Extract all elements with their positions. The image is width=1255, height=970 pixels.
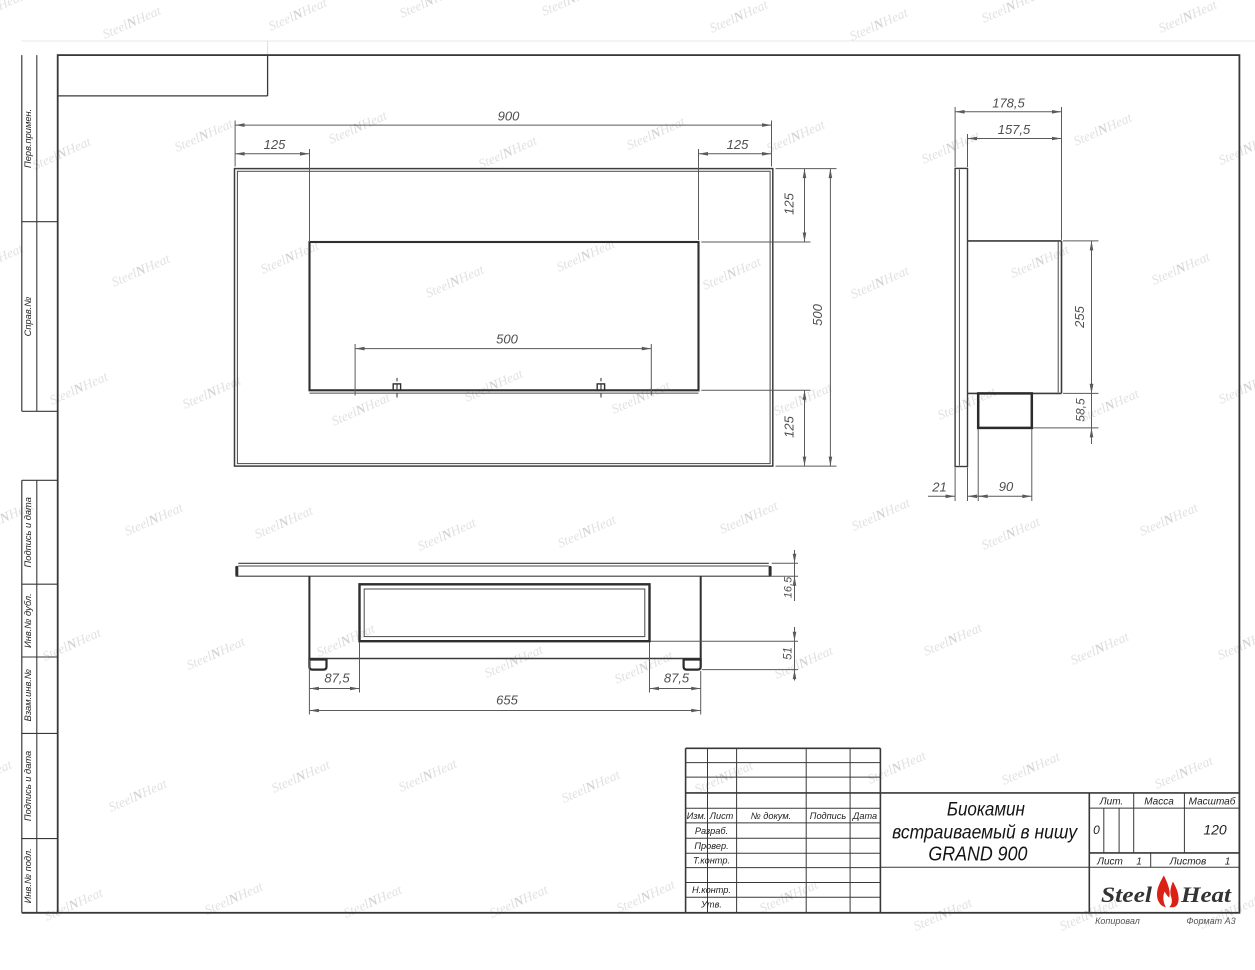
svg-text:120: 120: [1203, 822, 1227, 838]
svg-text:21: 21: [931, 480, 946, 495]
svg-text:Инв.№ дубл.: Инв.№ дубл.: [23, 593, 33, 648]
svg-text:Подпись и дата: Подпись и дата: [23, 497, 33, 567]
svg-text:Листов: Листов: [1169, 856, 1206, 867]
svg-text:№ докум.: № докум.: [751, 811, 791, 821]
svg-text:Провер.: Провер.: [694, 841, 728, 851]
svg-text:Копировал: Копировал: [1095, 916, 1140, 926]
svg-text:Биокамин: Биокамин: [947, 799, 1025, 821]
svg-text:Т.контр.: Т.контр.: [693, 856, 730, 866]
svg-text:87,5: 87,5: [324, 671, 350, 686]
svg-text:Масштаб: Масштаб: [1189, 796, 1236, 808]
svg-text:0: 0: [1093, 823, 1100, 837]
svg-text:Утв.: Утв.: [700, 900, 722, 910]
svg-text:500: 500: [496, 332, 518, 347]
svg-text:51: 51: [783, 647, 795, 660]
svg-text:90: 90: [999, 479, 1014, 494]
svg-text:178,5: 178,5: [992, 95, 1025, 110]
svg-text:Лист: Лист: [709, 811, 734, 821]
svg-text:Steel: Steel: [1101, 882, 1153, 907]
svg-text:Инв.№ подл.: Инв.№ подл.: [23, 848, 33, 903]
svg-text:Масса: Масса: [1144, 797, 1174, 808]
svg-text:1: 1: [1136, 856, 1142, 867]
svg-text:125: 125: [264, 137, 286, 152]
svg-text:Н.контр.: Н.контр.: [692, 885, 731, 895]
svg-text:GRAND 900: GRAND 900: [928, 844, 1027, 866]
svg-text:Heat: Heat: [1180, 882, 1232, 907]
svg-text:16,5: 16,5: [783, 576, 795, 598]
svg-text:Лист: Лист: [1096, 856, 1123, 867]
svg-text:Подпись и дата: Подпись и дата: [23, 751, 33, 821]
svg-text:125: 125: [782, 192, 797, 214]
svg-text:Лит.: Лит.: [1099, 797, 1123, 808]
svg-text:125: 125: [782, 415, 797, 437]
svg-text:Перв.примен.: Перв.примен.: [23, 109, 33, 168]
svg-text:125: 125: [727, 137, 749, 152]
svg-text:Дата: Дата: [852, 811, 877, 821]
svg-text:1: 1: [1225, 856, 1231, 867]
svg-text:87,5: 87,5: [664, 671, 690, 686]
svg-text:58,5: 58,5: [1074, 398, 1088, 422]
svg-text:Взам.инв.№: Взам.инв.№: [23, 669, 33, 721]
svg-text:Справ.№: Справ.№: [23, 297, 33, 337]
svg-text:157,5: 157,5: [998, 122, 1031, 137]
svg-text:Подпись: Подпись: [810, 811, 847, 821]
svg-text:Формат А3: Формат А3: [1186, 916, 1235, 926]
svg-text:встраиваемый в нишу: встраиваемый в нишу: [892, 822, 1078, 844]
svg-text:255: 255: [1072, 305, 1087, 328]
svg-text:900: 900: [498, 109, 520, 124]
svg-text:655: 655: [496, 693, 518, 708]
svg-text:Изм.: Изм.: [687, 811, 707, 821]
svg-text:Разраб.: Разраб.: [695, 826, 728, 836]
svg-text:500: 500: [810, 303, 825, 325]
